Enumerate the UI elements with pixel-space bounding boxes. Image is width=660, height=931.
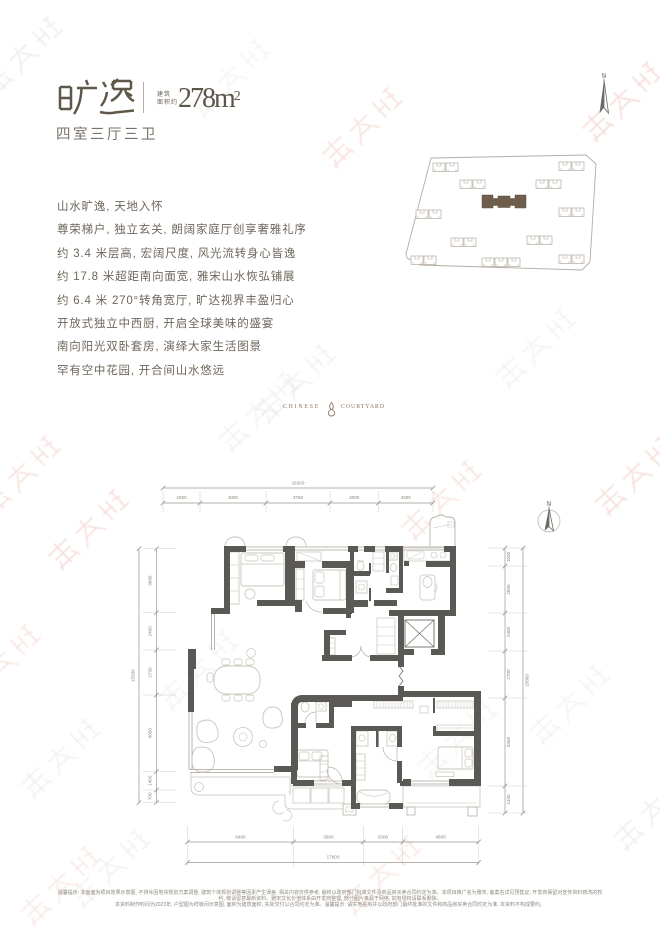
- svg-text:17800: 17800: [327, 855, 340, 860]
- svg-text:2250: 2250: [176, 495, 187, 500]
- svg-text:3600: 3600: [323, 835, 334, 840]
- svg-text:16300: 16300: [292, 481, 305, 486]
- svg-text:4600: 4600: [435, 835, 446, 840]
- svg-text:1400: 1400: [506, 794, 511, 805]
- svg-text:3750: 3750: [293, 495, 304, 500]
- svg-text:2700: 2700: [506, 669, 511, 680]
- svg-text:6400: 6400: [235, 835, 246, 840]
- svg-text:2400: 2400: [148, 626, 153, 637]
- svg-text:2000: 2000: [378, 835, 389, 840]
- svg-text:3300: 3300: [401, 495, 412, 500]
- svg-text:2400: 2400: [506, 626, 511, 637]
- svg-text:N: N: [547, 501, 552, 508]
- svg-text:4050: 4050: [228, 495, 239, 500]
- svg-text:N: N: [602, 73, 607, 80]
- svg-text:3000: 3000: [349, 495, 360, 500]
- svg-text:15800: 15800: [525, 674, 530, 687]
- svg-text:2730: 2730: [148, 667, 153, 678]
- svg-text:5350: 5350: [506, 736, 511, 747]
- svg-text:1000: 1000: [506, 551, 511, 562]
- svg-text:700: 700: [148, 792, 153, 800]
- svg-text:2890: 2890: [506, 584, 511, 595]
- svg-text:3690: 3690: [148, 575, 153, 586]
- svg-text:1400: 1400: [148, 775, 153, 786]
- svg-text:15500: 15500: [131, 669, 136, 682]
- svg-text:4050: 4050: [148, 728, 153, 739]
